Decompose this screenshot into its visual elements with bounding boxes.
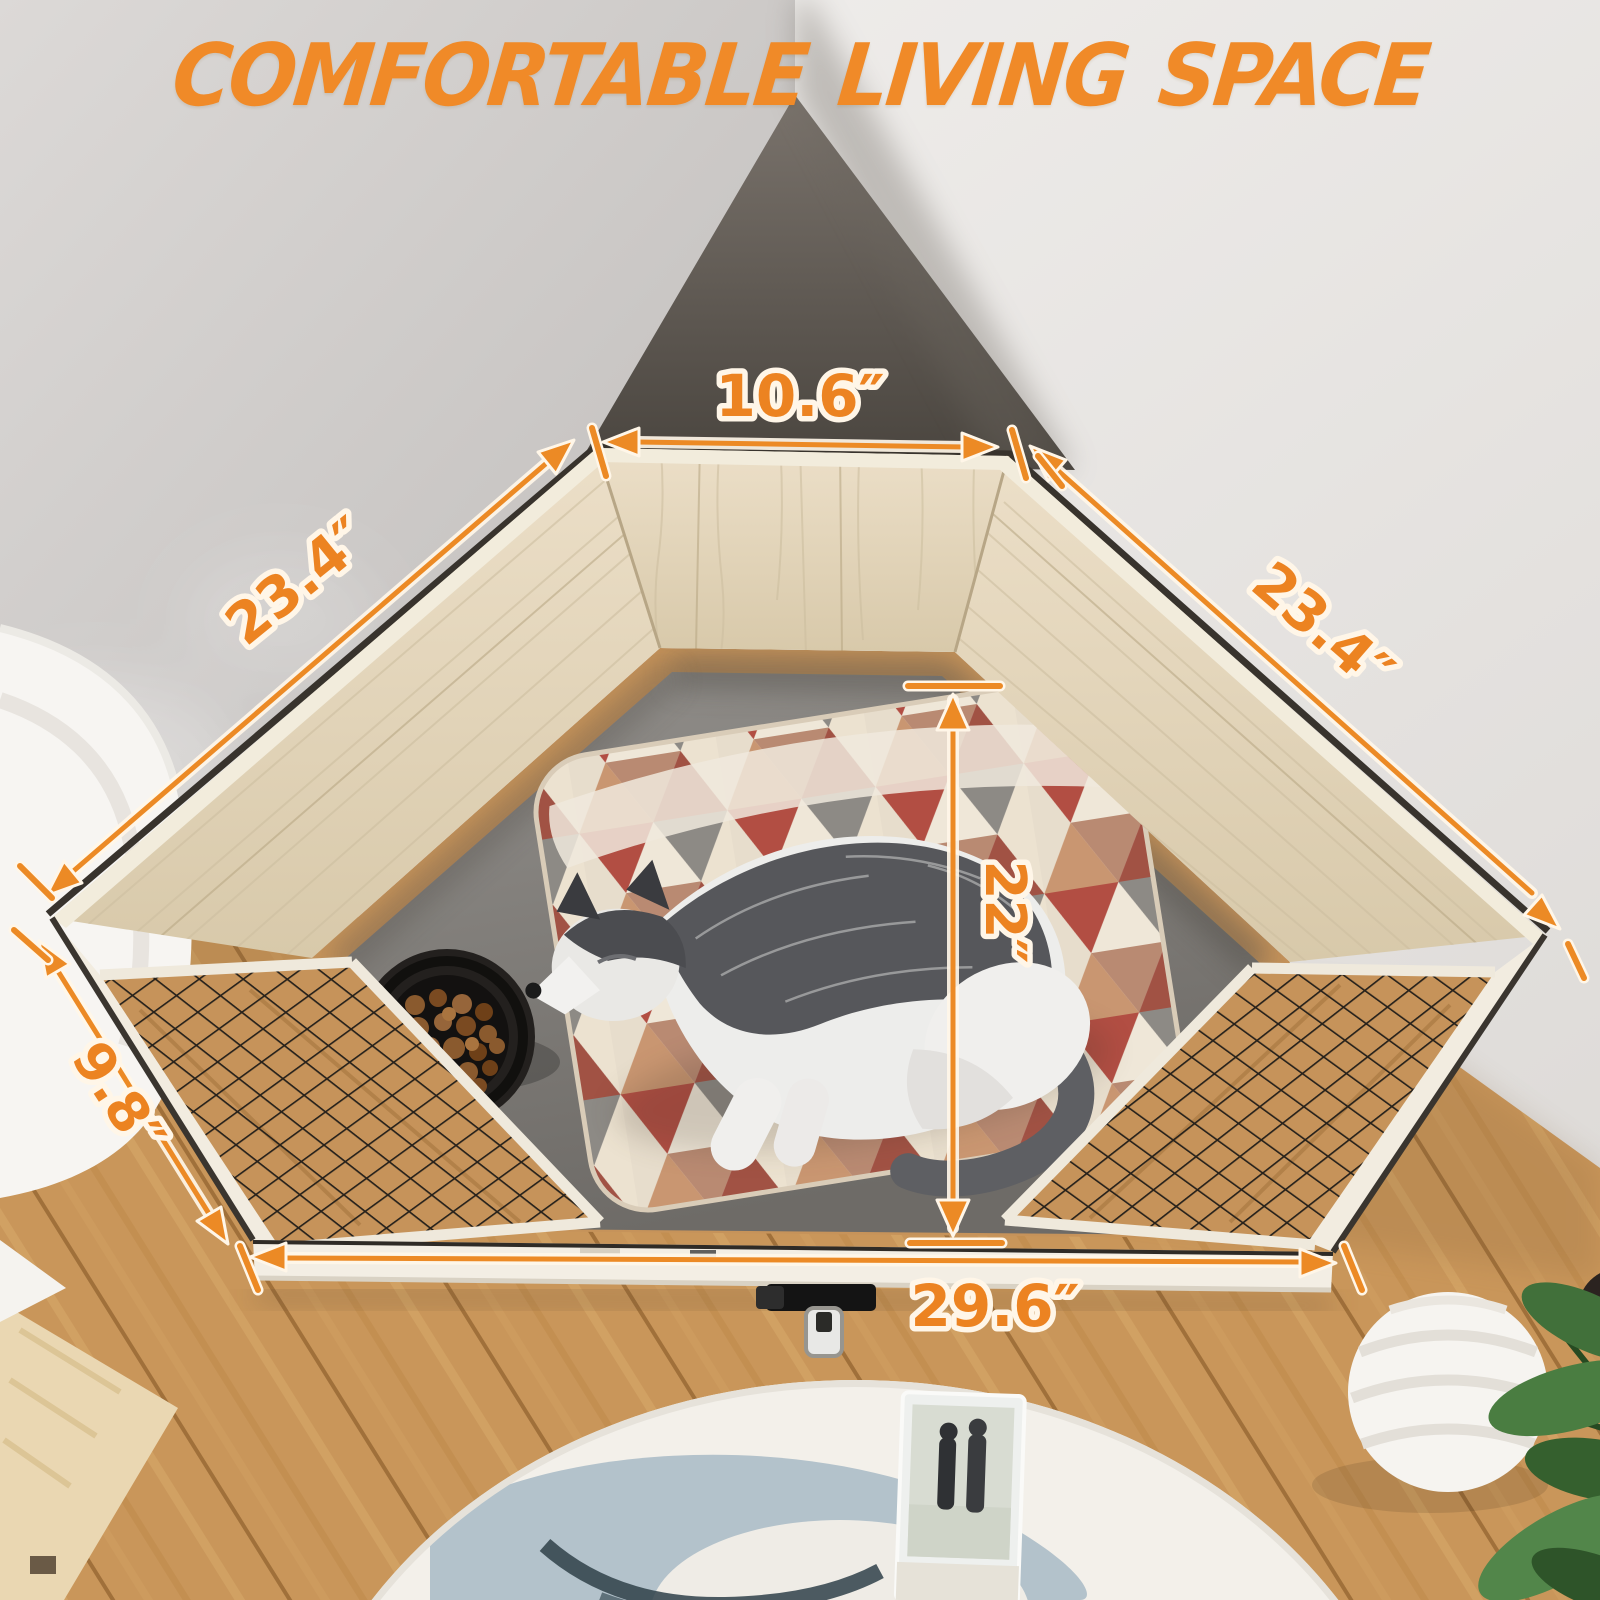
product-dimension-image: 10.6″ 23.4″ 23.4″ 9.8″ 22″ 29.6″ COMFORT… xyxy=(0,0,1600,1600)
interior-depth-label: 22″ xyxy=(972,861,1037,964)
back-width-label: 10.6″ xyxy=(715,362,884,430)
photo-frame xyxy=(896,1392,1025,1600)
page-title: COMFORTABLE LIVING SPACE xyxy=(51,26,1550,126)
front-width-label: 29.6″ xyxy=(910,1272,1079,1340)
room-scene: 10.6″ 23.4″ 23.4″ 9.8″ 22″ 29.6″ xyxy=(0,0,1600,1600)
